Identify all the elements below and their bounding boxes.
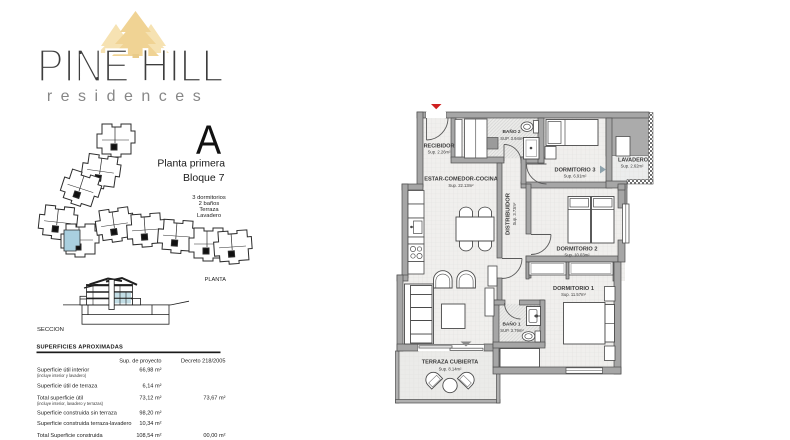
svg-text:Superficie construida sin terr: Superficie construida sin terraza xyxy=(37,410,118,416)
svg-text:Superficie útil de terraza: Superficie útil de terraza xyxy=(37,383,98,389)
svg-text:PLANTA: PLANTA xyxy=(205,277,227,283)
svg-text:Total Superficie construida: Total Superficie construida xyxy=(37,433,103,439)
svg-text:Sup. 10.03m²: Sup. 10.03m² xyxy=(564,253,590,258)
svg-text:Sup. 2.62m²: Sup. 2.62m² xyxy=(621,164,644,169)
svg-text:Sup. 6.91m²: Sup. 6.91m² xyxy=(564,174,587,179)
svg-text:Bloque 7: Bloque 7 xyxy=(183,172,225,184)
svg-text:Sup. 22.13m²: Sup. 22.13m² xyxy=(448,183,474,188)
svg-text:BAÑO 2: BAÑO 2 xyxy=(502,128,520,135)
svg-text:ESTAR-COMEDOR-COCINA: ESTAR-COMEDOR-COCINA xyxy=(424,177,498,183)
svg-text:A: A xyxy=(196,118,221,163)
svg-text:98,20 m²: 98,20 m² xyxy=(139,410,161,416)
svg-text:Planta primera: Planta primera xyxy=(157,159,225,170)
svg-text:residences: residences xyxy=(47,88,209,105)
svg-text:73,12 m²: 73,12 m² xyxy=(139,395,161,401)
svg-text:Decreto 218/2005: Decreto 218/2005 xyxy=(181,358,225,364)
svg-text:(incluye interior, lavadero y: (incluye interior, lavadero y terrazas) xyxy=(37,401,104,406)
svg-text:Sup. de proyecto: Sup. de proyecto xyxy=(119,358,161,364)
svg-text:Lavadero: Lavadero xyxy=(197,213,221,219)
svg-text:66,98 m²: 66,98 m² xyxy=(139,368,161,374)
svg-text:6,14 m²: 6,14 m² xyxy=(143,383,162,389)
svg-text:BAÑO 1: BAÑO 1 xyxy=(502,321,520,328)
svg-text:SECCION: SECCION xyxy=(37,327,64,333)
svg-text:DISTRIBUIDOR: DISTRIBUIDOR xyxy=(506,192,512,235)
svg-text:Sup. 11.57m²: Sup. 11.57m² xyxy=(561,292,586,297)
svg-text:108,54 m²: 108,54 m² xyxy=(136,433,161,439)
svg-text:SUPERFICIES APROXIMADAS: SUPERFICIES APROXIMADAS xyxy=(37,344,124,350)
svg-text:PINE HILL: PINE HILL xyxy=(37,41,224,93)
svg-text:Superficie construida terraza-: Superficie construida terraza-lavadero xyxy=(37,421,132,427)
svg-text:Sup. 3.73m²: Sup. 3.73m² xyxy=(512,202,517,225)
svg-text:73,67 m²: 73,67 m² xyxy=(203,395,225,401)
svg-text:Sup. 8.14m²: Sup. 8.14m² xyxy=(439,367,462,372)
svg-text:SUP. 3.79m²: SUP. 3.79m² xyxy=(500,328,524,333)
svg-text:(incluye interior y lavadero): (incluye interior y lavadero) xyxy=(37,373,87,378)
svg-text:00,00 m²: 00,00 m² xyxy=(203,433,225,439)
svg-text:SUP. 3.94m²: SUP. 3.94m² xyxy=(500,136,524,141)
svg-text:10,34 m²: 10,34 m² xyxy=(139,421,161,427)
svg-text:TERRAZA CUBIERTA: TERRAZA CUBIERTA xyxy=(422,360,479,366)
svg-text:Sup. 2.26m²: Sup. 2.26m² xyxy=(428,150,451,155)
